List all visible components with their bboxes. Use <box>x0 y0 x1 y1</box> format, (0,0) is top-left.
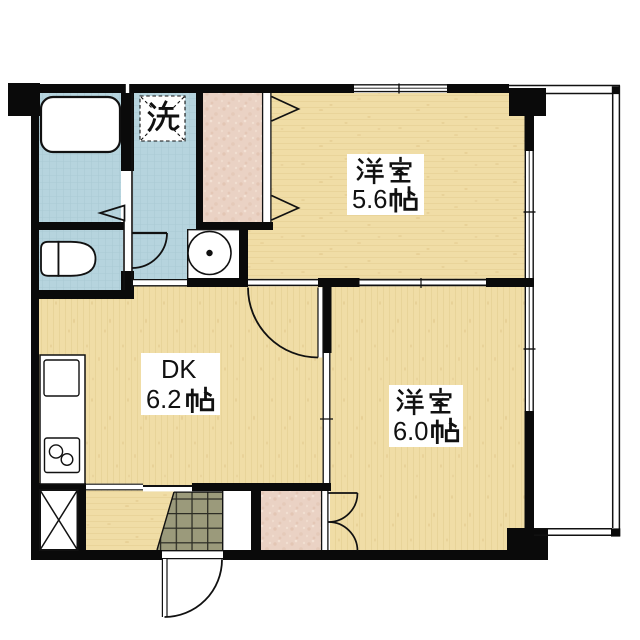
svg-text:5.6: 5.6 <box>352 186 387 214</box>
svg-text:6.2: 6.2 <box>146 386 181 414</box>
svg-text:DK: DK <box>161 356 196 384</box>
svg-text:6.0: 6.0 <box>393 418 428 446</box>
